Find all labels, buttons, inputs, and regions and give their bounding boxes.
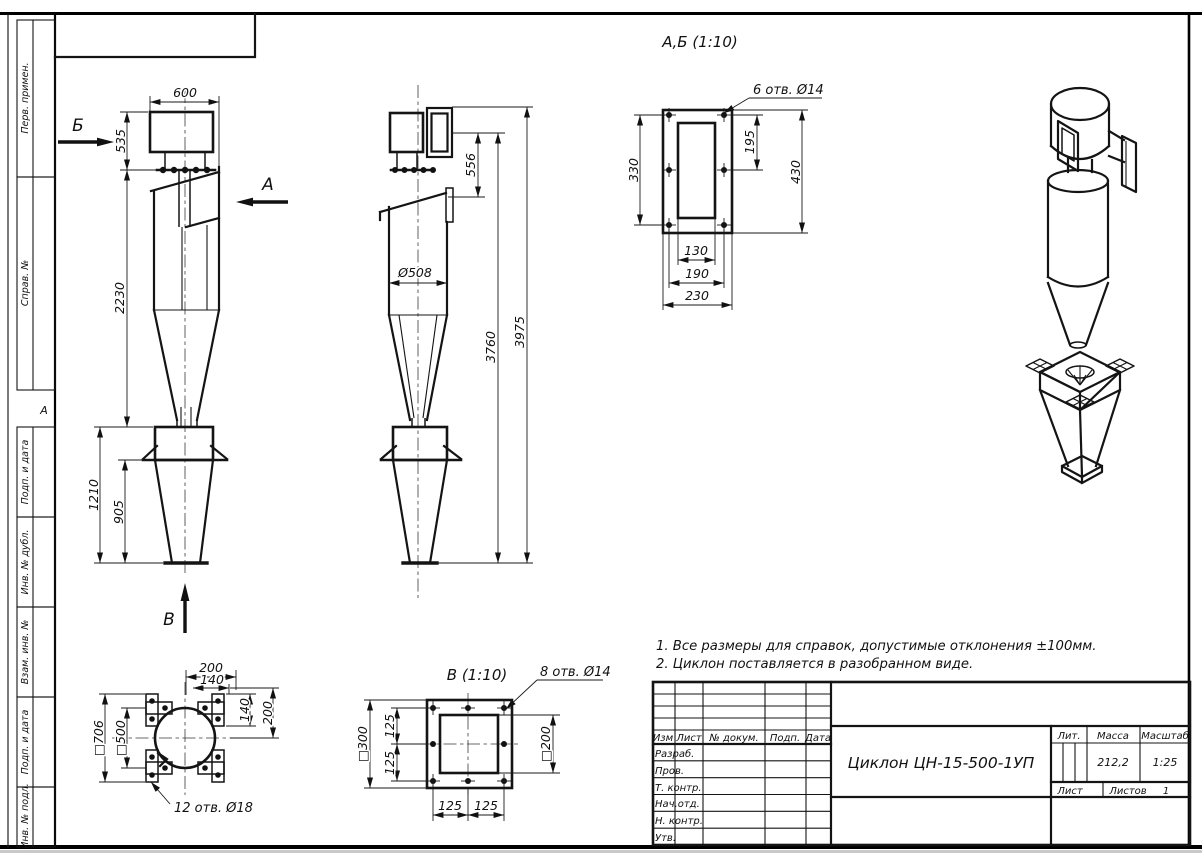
drawing-sheet: А Перв. примен. Справ. № Подп. и дата Ин… xyxy=(0,0,1202,853)
dim-125-c: 125 xyxy=(438,798,462,813)
detail-v-title: В (1:10) xyxy=(447,666,507,684)
zone-marker: А xyxy=(39,404,48,417)
row-n-kontr: Н. контр. xyxy=(655,816,703,827)
row-nach-otd: Нач.отд. xyxy=(655,799,700,810)
stamp-label: Инв. № подл. xyxy=(20,783,31,849)
dim-125-d: 125 xyxy=(474,798,498,813)
dim-195: 195 xyxy=(742,130,757,154)
note-2: 2. Циклон поставляется в разобранном вид… xyxy=(656,656,973,672)
label-v: В xyxy=(163,610,175,630)
col-podp: Подп. xyxy=(770,733,800,744)
callout-text: 8 отв. Ø14 xyxy=(540,665,611,680)
dim-125-a: 125 xyxy=(382,714,397,738)
dim-190: 190 xyxy=(685,266,709,281)
row-prov: Пров. xyxy=(655,766,684,777)
col-list: Лист xyxy=(675,733,703,744)
dim-430: 430 xyxy=(788,160,803,184)
dim-200: □200 xyxy=(538,726,553,762)
dim-140-top: 140 xyxy=(200,672,224,687)
dim-1210: 1210 xyxy=(86,479,101,511)
dim-600: 600 xyxy=(173,85,197,100)
stamp-label: Инв. № дубл. xyxy=(20,530,31,595)
dim-300: □300 xyxy=(355,726,370,762)
dim-130: 130 xyxy=(684,243,708,258)
mass-label: Масса xyxy=(1097,731,1129,742)
document-title: Циклон ЦН-15-500-1УП xyxy=(848,754,1035,772)
detail-ab-title: А,Б (1:10) xyxy=(661,33,737,51)
label-b: Б xyxy=(72,116,84,136)
row-t-kontr: Т. контр. xyxy=(655,783,702,794)
sheet-label: Лист xyxy=(1056,786,1084,797)
dim-330: 330 xyxy=(626,158,641,182)
mass-value: 212,2 xyxy=(1097,756,1129,769)
drawing-canvas: А Перв. примен. Справ. № Подп. и дата Ин… xyxy=(0,0,1202,853)
stamp-label: Перв. примен. xyxy=(20,62,31,133)
dim-125-b: 125 xyxy=(382,751,397,775)
col-doc: № докум. xyxy=(708,733,758,744)
dim-230: 230 xyxy=(685,288,709,303)
row-razrab: Разраб. xyxy=(655,748,694,760)
callout-text: 6 отв. Ø14 xyxy=(753,83,824,98)
lit-label: Лит. xyxy=(1056,731,1080,742)
stamp-label: Взам. инв. № xyxy=(20,620,31,685)
dim-200-right: 200 xyxy=(260,701,275,725)
callout-text: 12 отв. Ø18 xyxy=(174,801,253,816)
row-utv: Утв. xyxy=(655,833,676,844)
dim-2230: 2230 xyxy=(112,282,127,314)
scale-label: Масштаб xyxy=(1141,730,1189,742)
dim-535: 535 xyxy=(113,129,128,153)
dim-905: 905 xyxy=(111,500,126,524)
dim-706: □706 xyxy=(91,720,106,756)
col-data: Дата xyxy=(804,733,831,744)
sheets-label: Листов xyxy=(1108,786,1146,797)
stamp-label: Справ. № xyxy=(20,260,31,306)
dim-500: □500 xyxy=(113,720,128,756)
dim-140-right: 140 xyxy=(237,698,252,722)
col-izm: Изм xyxy=(653,733,674,744)
dim-556: 556 xyxy=(463,153,478,177)
dim-3975: 3975 xyxy=(512,316,527,348)
scale-value: 1:25 xyxy=(1153,756,1178,769)
stamp-label: Подп. и дата xyxy=(20,439,31,504)
dim-508: Ø508 xyxy=(397,265,432,280)
dim-3760: 3760 xyxy=(483,331,498,363)
sheets-value: 1 xyxy=(1163,786,1169,797)
note-1: 1. Все размеры для справок, допустимые о… xyxy=(656,639,1096,654)
stamp-label: Подп. и дата xyxy=(20,709,31,774)
label-a: А xyxy=(261,175,274,195)
